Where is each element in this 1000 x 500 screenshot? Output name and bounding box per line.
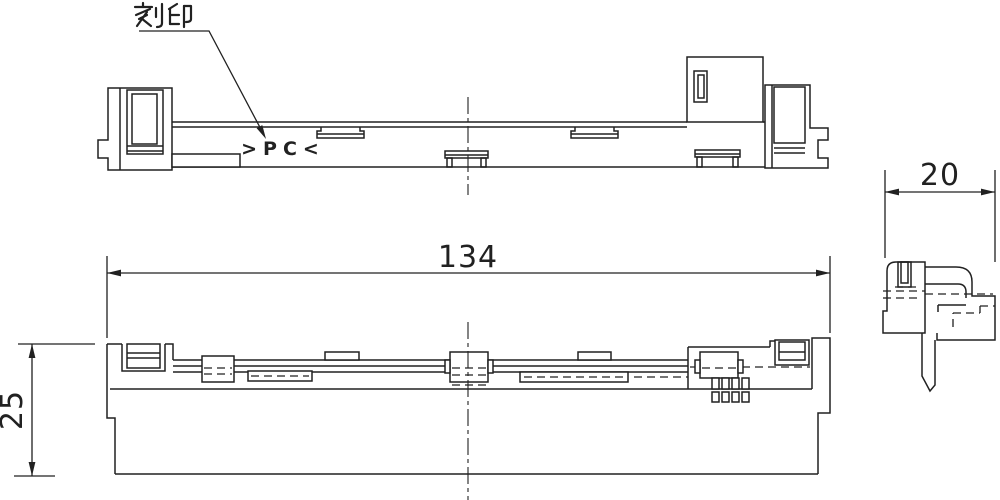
end-right-block bbox=[925, 267, 995, 340]
drawing-ink-layer: 刻印 >PC< 134 bbox=[0, 2, 995, 500]
lower-standoff-tab-1 bbox=[445, 151, 488, 167]
front-recess-strip-2 bbox=[520, 372, 628, 382]
front-right-section bbox=[688, 340, 809, 402]
engraving-mark-text: >PC< bbox=[241, 138, 325, 160]
left-end-bracket bbox=[98, 88, 240, 170]
front-recess-strip-1 bbox=[248, 371, 312, 381]
right-end-bracket bbox=[765, 85, 828, 168]
end-internal-steps bbox=[925, 284, 966, 312]
side-elevation-view bbox=[98, 57, 828, 195]
front-slider-block-1 bbox=[202, 356, 234, 382]
dimension-depth: 20 bbox=[885, 158, 995, 262]
contact-pins-lower bbox=[712, 392, 749, 402]
depth-dimension-value: 20 bbox=[920, 158, 960, 193]
front-center-block bbox=[445, 352, 493, 385]
front-top-tab-1 bbox=[325, 352, 359, 360]
engraving-label: 刻印 bbox=[134, 2, 184, 31]
latch-block bbox=[687, 57, 763, 122]
upper-mount-tab-2 bbox=[571, 127, 618, 138]
upper-mount-tab-1 bbox=[317, 127, 364, 138]
front-elevation-view bbox=[107, 322, 830, 500]
end-hidden-lines bbox=[883, 287, 995, 327]
lower-standoff-tab-2 bbox=[695, 150, 740, 167]
end-contact-pin bbox=[922, 333, 935, 391]
front-left-socket bbox=[107, 344, 173, 371]
front-rail-lines bbox=[173, 360, 688, 372]
bracket-ledge bbox=[172, 154, 240, 167]
drawing-sheet: 刻印 >PC< 134 bbox=[0, 0, 1000, 500]
length-dimension-value: 134 bbox=[438, 240, 498, 275]
contact-pins-upper bbox=[712, 378, 749, 389]
dimension-height: 25 bbox=[0, 344, 95, 476]
height-dimension-value: 25 bbox=[0, 390, 30, 430]
technical-drawing: 刻印 >PC< 134 bbox=[0, 0, 1000, 500]
end-profile-view bbox=[883, 262, 995, 391]
end-keyway-slot bbox=[898, 262, 911, 287]
front-top-tab-2 bbox=[578, 352, 611, 360]
